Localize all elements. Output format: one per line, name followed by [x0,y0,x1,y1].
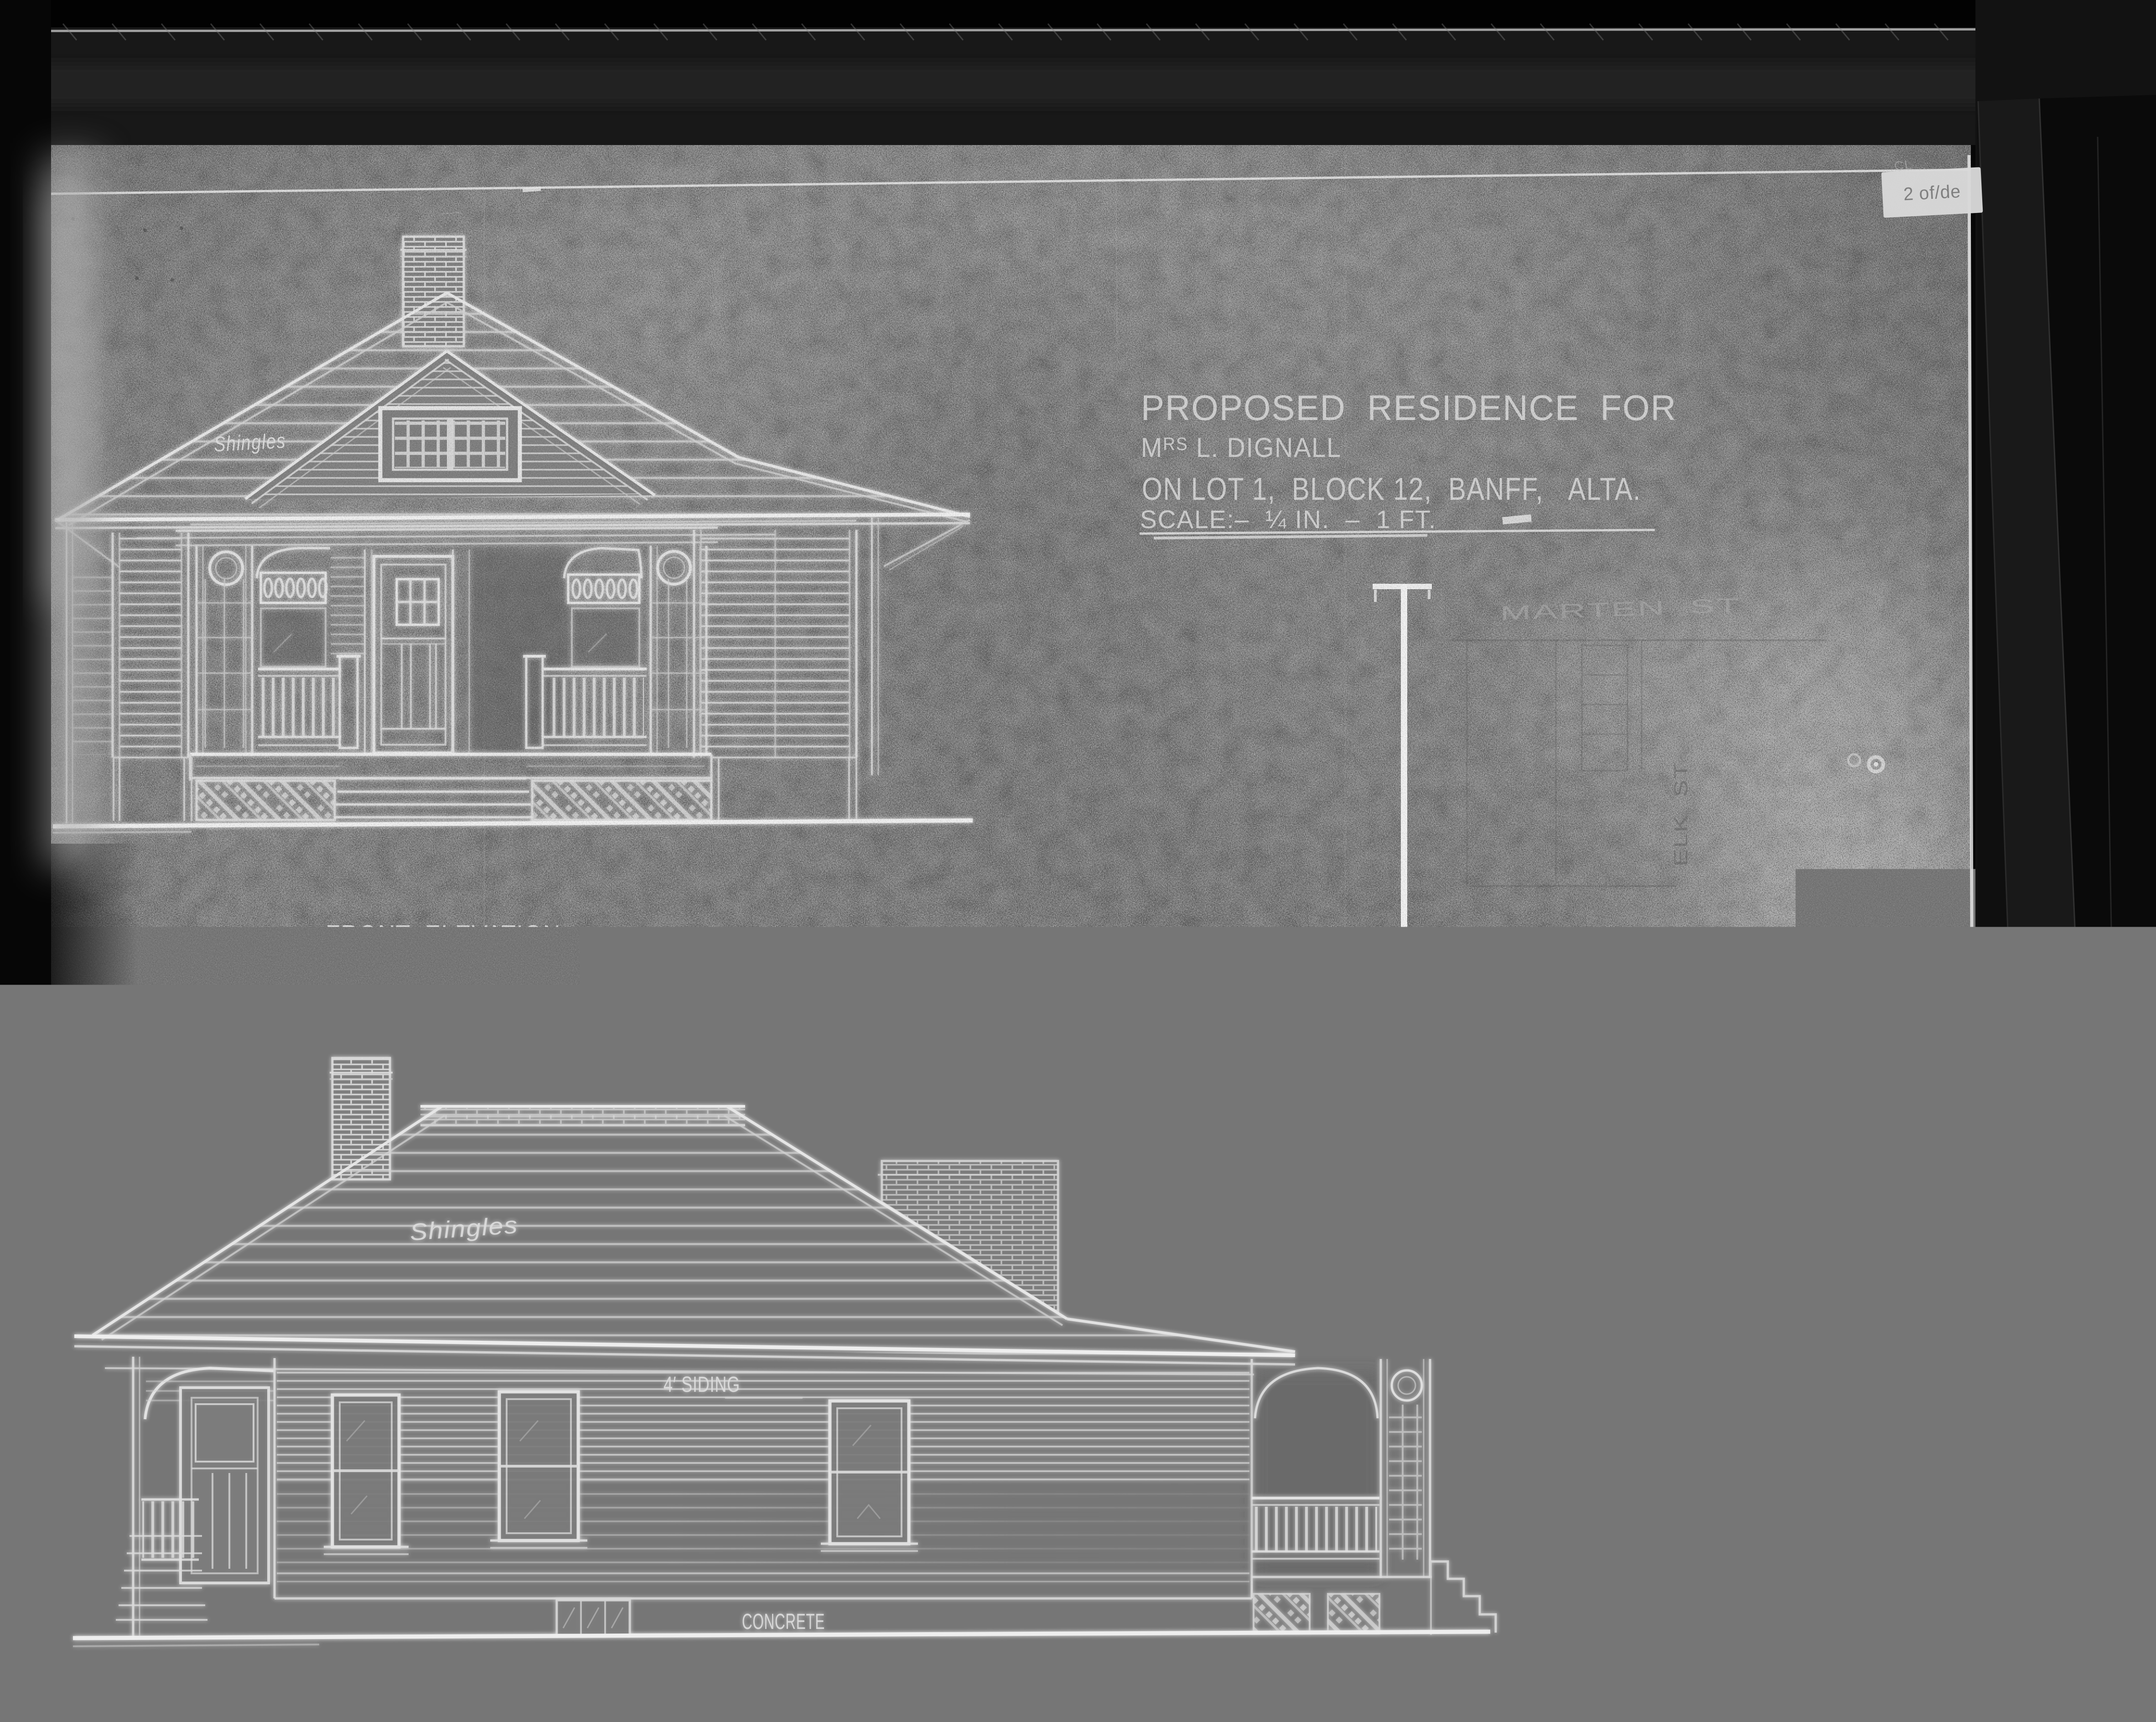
svg-text:2 of/de: 2 of/de [1903,182,1961,205]
